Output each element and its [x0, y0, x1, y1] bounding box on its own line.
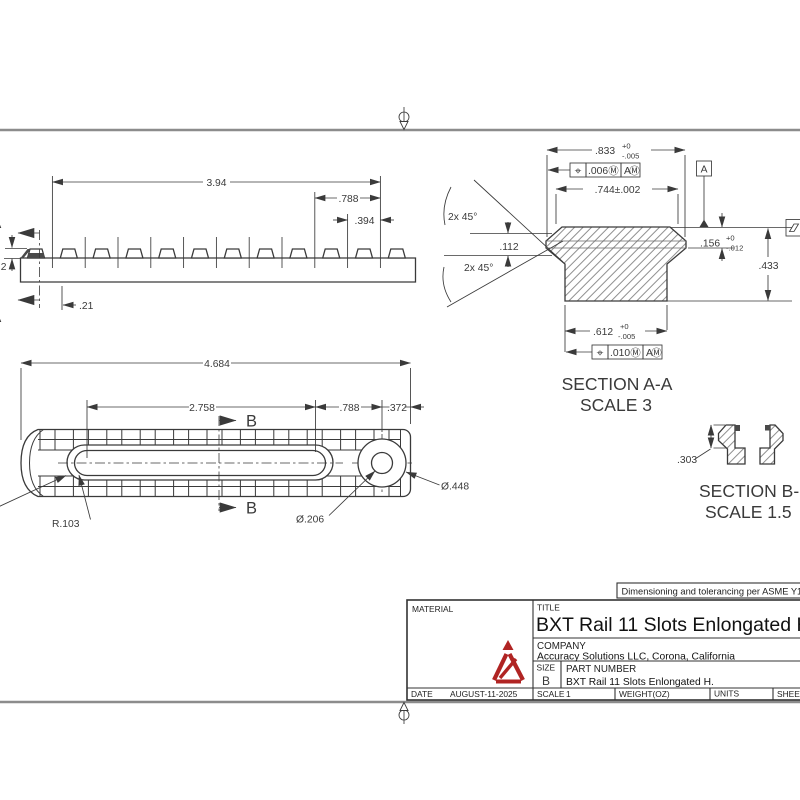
dim-two-pitch: .788: [339, 403, 359, 414]
datum-label: A: [701, 165, 708, 176]
counterbore-edge-shading: [735, 425, 770, 431]
dim-rib-height: .112: [499, 242, 519, 253]
section-aa-profile: [546, 227, 686, 301]
chamfer-note-upper: 2x 45°: [448, 212, 477, 223]
datum-feature-a: A: [697, 161, 712, 227]
section-aa-scale: SCALE 3: [580, 395, 652, 415]
center-mark-bottom-icon: [399, 703, 409, 725]
tolerance-minus: -.012: [726, 244, 743, 253]
size-value: B: [542, 674, 550, 688]
position-symbol-icon: ⌖: [575, 164, 582, 178]
title-block: MATERIAL TITLE BXT Rail 11 Slots Enlonga…: [407, 600, 800, 700]
section-bb-right-profile: [760, 425, 783, 464]
section-letter-b-top: B: [246, 413, 257, 431]
tooth-shading: [28, 253, 44, 258]
slot-radius-callout: R.103: [52, 519, 80, 530]
dim-top-width: .744±.002: [595, 185, 641, 196]
through-hole-circle: [372, 453, 393, 474]
section-view-bb: .303 SECTION B-B SCALE 1.5: [677, 425, 800, 522]
company-name: Accuracy Solutions LLC, Corona, Californ…: [537, 652, 735, 663]
position-symbol-icon: ⌖: [597, 346, 604, 360]
dim-base-width: .612: [593, 327, 613, 338]
section-letter-b-bottom: B: [246, 500, 257, 518]
date-value: AUGUST-11-2025: [450, 689, 518, 699]
tolerance-minus: -.005: [622, 152, 639, 161]
section-letter-a-top: A: [0, 216, 2, 231]
general-note: Dimensioning and tolerancing per ASME Y1: [617, 583, 800, 598]
mmc-modifier-icon: Ⓜ: [629, 166, 639, 178]
angle-arcs: [443, 187, 451, 302]
cbore-diameter-callout: Ø.448: [441, 482, 469, 493]
tolerance-plus: +0: [622, 142, 631, 151]
section-bb-title: SECTION B-B: [699, 481, 800, 501]
dim-end-offset: .21: [79, 301, 94, 312]
section-aa-title: SECTION A-A: [562, 374, 673, 394]
fcf-tolerance: .006: [588, 166, 608, 177]
center-mark-top-icon: [399, 107, 409, 130]
top-view: 4.684 2.758 .788 .372 B B R.103 Ø.206 Ø.…: [0, 359, 469, 530]
dim-height: .433: [758, 261, 778, 272]
dim-overall-length: 4.684: [204, 359, 230, 370]
dim-overall-length: 3.94: [206, 178, 226, 189]
weight-label: WEIGHT(OZ): [619, 689, 670, 699]
tolerance-minus: -.005: [618, 332, 635, 341]
feature-control-frame-top: ⌖ .006 Ⓜ A Ⓜ: [548, 163, 640, 178]
side-view: 3.94 .788 .394 .21 A A 2: [0, 176, 416, 325]
leader-line: [695, 449, 711, 459]
section-view-aa: .833 +0 -.005 ⌖ .006 Ⓜ A Ⓜ .744±.002 A: [443, 142, 800, 416]
mmc-modifier-icon: Ⓜ: [630, 348, 640, 360]
company-label: COMPANY: [537, 641, 586, 652]
part-number-label: PART NUMBER: [566, 664, 636, 675]
dim-max-width: .833: [595, 146, 615, 157]
hole-diameter-callout: Ø.206: [296, 515, 324, 526]
feature-control-frame-bottom: ⌖ .010 Ⓜ A Ⓜ: [566, 345, 662, 360]
size-label: SIZE: [537, 663, 556, 673]
dim-end: .372: [387, 403, 407, 414]
units-label: UNITS: [714, 689, 740, 699]
section-bb-scale: SCALE 1.5: [705, 502, 792, 522]
chamfer-note-lower: 2x 45°: [464, 263, 493, 274]
drawing-title: BXT Rail 11 Slots Enlongated H: [536, 614, 800, 636]
mmc-modifier-icon: Ⓜ: [651, 348, 661, 360]
tolerance-plus: +0: [726, 234, 735, 243]
mmc-modifier-icon: Ⓜ: [608, 166, 618, 178]
fcf-tolerance: .010: [610, 348, 630, 359]
tolerance-plus: +0: [620, 322, 629, 331]
title-label: TITLE: [537, 603, 560, 613]
dim-left-partial: 2: [1, 262, 7, 273]
rail-body-profile: [21, 258, 416, 282]
dim-pitch: .394: [354, 216, 374, 227]
dim-two-pitch: .788: [338, 194, 358, 205]
scale-label: SCALE: [537, 689, 565, 699]
dim-step: .156: [700, 239, 720, 250]
material-label: MATERIAL: [412, 604, 454, 614]
extension-lines: [4, 176, 380, 310]
part-number-value: BXT Rail 11 Slots Enlongated H.: [566, 677, 714, 688]
sheet-label: SHEET: [777, 689, 800, 699]
section-letter-a-bottom: A: [0, 310, 2, 325]
dim-depth: .303: [677, 455, 697, 466]
company-logo: [494, 640, 523, 682]
scale-value: 1: [566, 689, 571, 699]
extension-lines: [556, 194, 678, 224]
tolerancing-note: Dimensioning and tolerancing per ASME Y1: [622, 587, 800, 597]
datum-triangle-icon: [700, 220, 709, 228]
dim-slot-length: 2.758: [189, 403, 215, 414]
section-bb-left-profile: [719, 425, 746, 464]
cad-drawing-sheet: 3.94 .788 .394 .21 A A 2 .833 +0 -.005: [0, 0, 800, 800]
date-label: DATE: [411, 689, 433, 699]
